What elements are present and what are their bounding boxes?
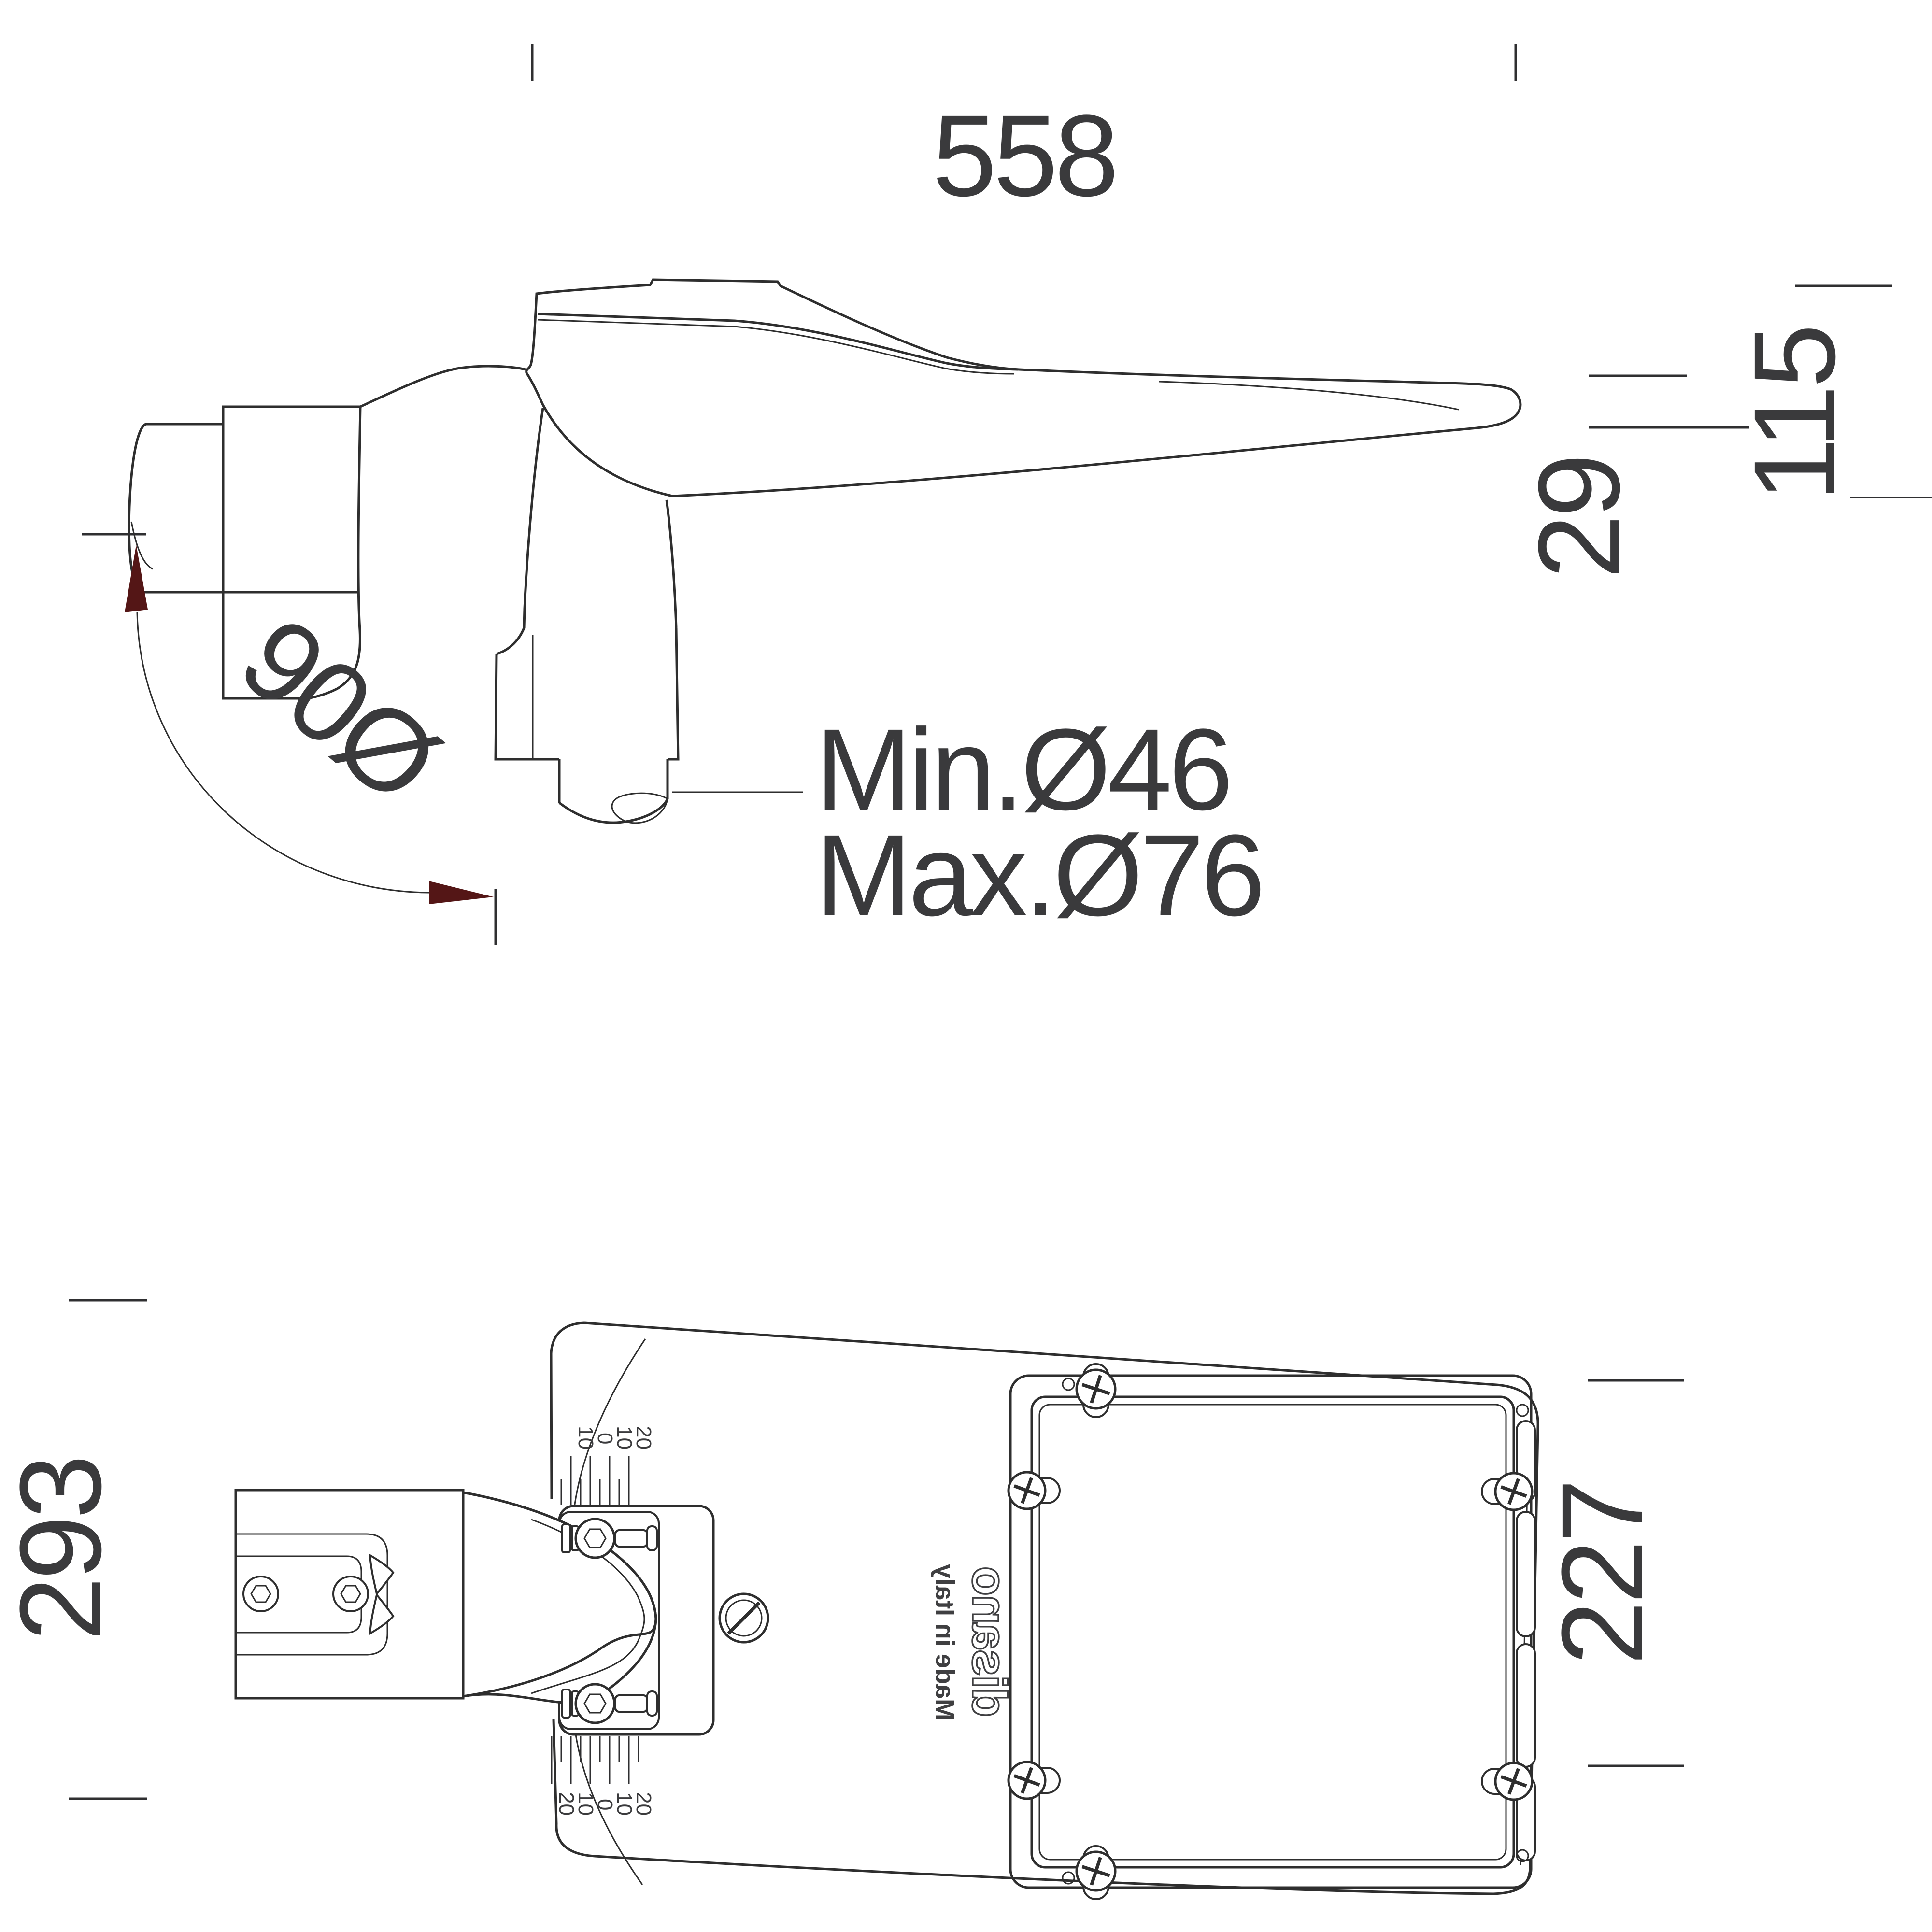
panel-screw-right-lower: [1482, 1763, 1532, 1800]
side-view: 558 Min.Ø46 Max.Ø76: [82, 44, 1932, 945]
dim-293-label: 293: [0, 1458, 125, 1641]
panel-screw-left-upper: [1009, 1472, 1060, 1509]
canopy-seam-lower: [538, 320, 1014, 374]
neck-left-line: [524, 408, 543, 628]
panel-inner-inner: [1039, 1405, 1506, 1860]
dim-115-label: 115: [1730, 327, 1859, 502]
slotted-screw: [720, 1594, 768, 1642]
corner-hole-top-left: [1063, 1378, 1074, 1390]
arc-arrow-right-icon: [429, 881, 494, 904]
bracket-bolt-left: [243, 1577, 278, 1611]
panel-screw-bottom: [1077, 1846, 1115, 1899]
corner-hole-top-right: [1517, 1405, 1528, 1416]
corner-hole-bottom-left: [1063, 1872, 1074, 1884]
rotation-angle-label: 90Ø: [217, 593, 461, 826]
arc-arrow-up-icon: [125, 545, 148, 612]
scale-top-label-3: 20: [632, 1426, 655, 1449]
made-in-italy-text: Made in Italy: [930, 1564, 959, 1720]
clamp-right: [668, 628, 678, 759]
dim-29-label: 29: [1514, 457, 1644, 579]
scale-bottom-label-4: 20: [632, 1792, 655, 1816]
bottom-view: disano Made in Italy 10 0 10 20: [0, 1300, 1684, 1899]
pole-bracket-bottom-view: [236, 1490, 463, 1698]
neck-left-hook: [497, 628, 524, 654]
panel-frame-outer: [1010, 1376, 1531, 1888]
panel-screw-right-upper: [1482, 1473, 1532, 1510]
canopy-lip-line: [1159, 382, 1459, 410]
bracket-bolt-right: [333, 1577, 368, 1611]
dim-558-label: 558: [932, 91, 1115, 220]
luminaire-head-outline: [526, 280, 1520, 496]
neck-right-line: [667, 500, 676, 628]
body-outline-left-upper: [551, 1323, 584, 1499]
clamp-left: [496, 654, 559, 759]
panel-screw-top: [1077, 1364, 1115, 1417]
bracket-to-head-line: [360, 366, 527, 407]
panel-inner-outer: [1032, 1397, 1514, 1867]
pole-outline: [129, 424, 223, 592]
trim-slot-2: [1517, 1512, 1535, 1636]
tilt-scale-bottom: 20 10 0 10 20: [552, 1736, 655, 1816]
logo-text: disano: [962, 1567, 1016, 1717]
dim-227-label: 227: [1537, 1482, 1667, 1665]
panel-screw-left-lower: [1009, 1762, 1060, 1799]
trim-slot-3: [1517, 1644, 1535, 1767]
tilt-scale-top: 10 0 10 20: [561, 1426, 655, 1505]
technical-drawing: 558 Min.Ø46 Max.Ø76: [0, 0, 1932, 1932]
pole-max-label: Max.Ø76: [815, 810, 1262, 940]
